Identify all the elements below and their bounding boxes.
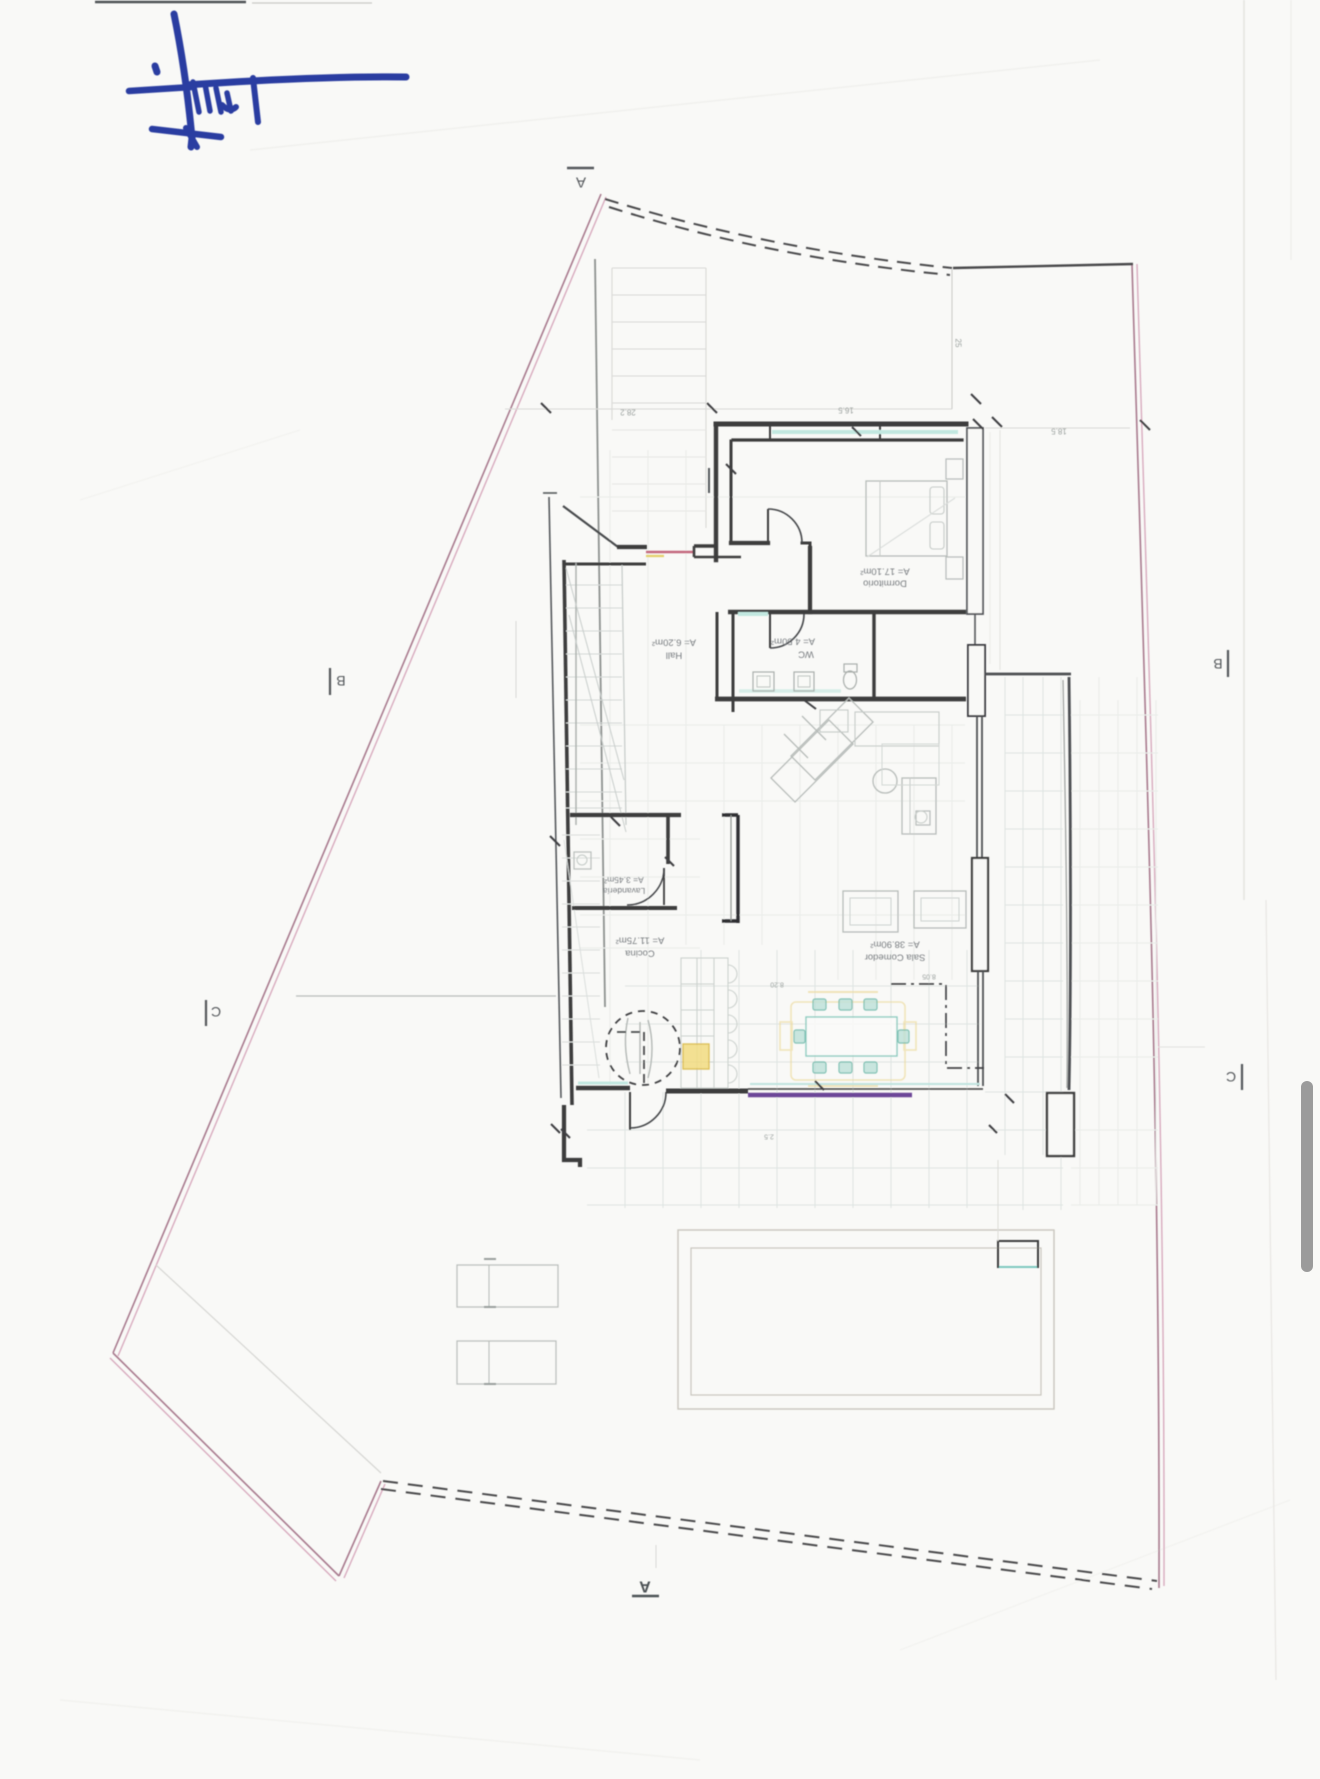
svg-text:C: C [211, 1004, 221, 1020]
svg-text:25: 25 [954, 339, 963, 348]
svg-text:WC: WC [798, 649, 814, 660]
svg-text:Dormitorio: Dormitorio [863, 578, 907, 589]
svg-text:2.5: 2.5 [764, 1133, 774, 1140]
svg-text:A: A [576, 174, 586, 191]
svg-text:A= 11.75m²: A= 11.75m² [616, 935, 665, 946]
svg-text:Lavandería: Lavandería [602, 886, 645, 896]
svg-text:C: C [1226, 1069, 1236, 1085]
svg-text:A= 17.10m²: A= 17.10m² [860, 566, 909, 577]
svg-text:16.5: 16.5 [838, 406, 854, 415]
svg-text:A= 38.90m²: A= 38.90m² [870, 939, 919, 950]
svg-text:8.05: 8.05 [922, 973, 936, 980]
svg-text:Hall: Hall [666, 650, 682, 661]
svg-text:Cocina: Cocina [625, 948, 655, 959]
svg-text:28.2: 28.2 [620, 408, 636, 417]
svg-text:A= 4.50m²: A= 4.50m² [771, 636, 815, 647]
svg-text:B: B [1213, 656, 1222, 672]
svg-text:A: A [639, 1578, 651, 1595]
svg-text:A= 6.20m²: A= 6.20m² [652, 637, 696, 648]
svg-text:B: B [336, 673, 345, 689]
svg-text:18.5: 18.5 [1051, 427, 1067, 436]
svg-text:Sala Comedor: Sala Comedor [865, 952, 926, 963]
svg-text:8.20: 8.20 [770, 981, 784, 988]
svg-text:A= 3.45m²: A= 3.45m² [604, 875, 644, 885]
